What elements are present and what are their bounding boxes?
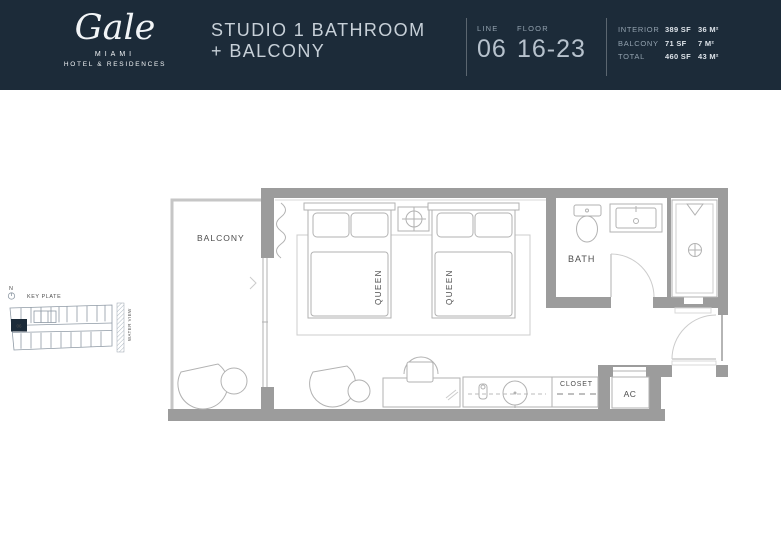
unit-number: 06 xyxy=(16,324,22,329)
desk-chair xyxy=(404,357,438,382)
bed-2: QUEEN xyxy=(428,203,519,318)
shower-head-icon xyxy=(687,204,703,215)
vanity-sink xyxy=(610,204,662,232)
entry-threshold xyxy=(672,361,716,365)
ac-label: AC xyxy=(624,389,637,399)
entry-door xyxy=(672,315,716,359)
bath-label: BATH xyxy=(568,254,595,264)
north-label: N xyxy=(9,286,14,292)
living-side-table xyxy=(348,380,370,402)
floor-plan: N KEY PLATE 06 WATER VIEW xyxy=(0,0,781,538)
closet: CLOSET xyxy=(557,381,596,394)
balcony-armchair xyxy=(178,364,228,409)
entry: AC xyxy=(612,315,716,408)
key-plate: N KEY PLATE 06 WATER VIEW xyxy=(8,286,132,352)
bathroom: BATH xyxy=(568,200,717,297)
keyplate-title: KEY PLATE xyxy=(27,294,61,300)
faucet-icon xyxy=(479,384,487,399)
queen-label-1: QUEEN xyxy=(374,269,383,305)
sliding-door xyxy=(262,258,268,387)
shower xyxy=(672,200,717,297)
queen-label-2: QUEEN xyxy=(445,269,454,305)
water-hatch xyxy=(117,303,124,352)
water-view-label: WATER VIEW xyxy=(127,308,132,341)
balcony-label: BALCONY xyxy=(197,233,245,243)
curtain-icon xyxy=(277,203,286,258)
nightstand xyxy=(398,207,429,231)
slide-arrow-icon xyxy=(250,277,256,289)
ac-unit: AC xyxy=(612,367,649,408)
shower-niche xyxy=(684,297,703,304)
closet-label: CLOSET xyxy=(560,381,593,388)
balcony-side-table xyxy=(221,368,247,394)
toilet xyxy=(574,205,601,242)
bed-1: QUEEN xyxy=(304,203,395,318)
bath-door xyxy=(611,254,654,297)
